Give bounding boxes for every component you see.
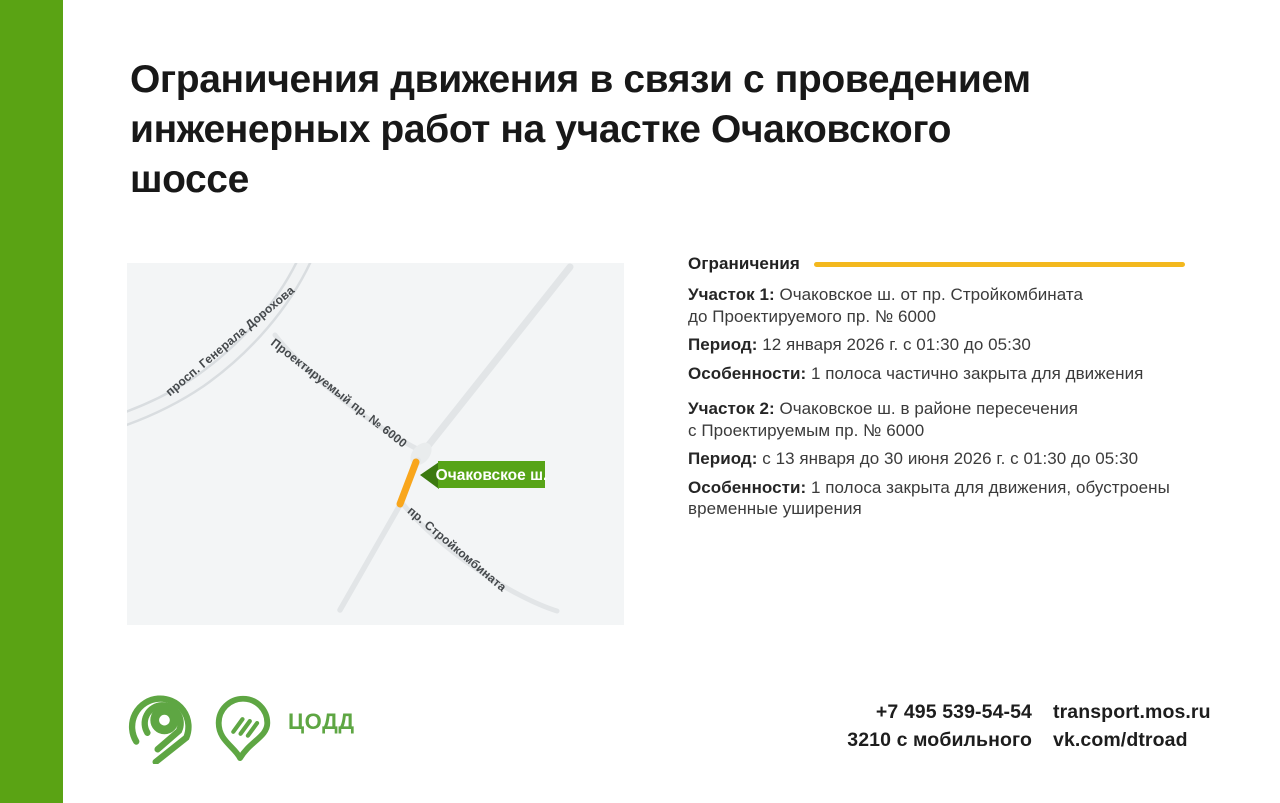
site-2: Участок 2: Очаковское ш. в районе пересе… — [688, 398, 1185, 441]
phone-mobile: 3210 с мобильного — [812, 727, 1032, 755]
road-map: просп. Генерала Дорохова Проектируемый п… — [127, 263, 624, 625]
social-link: vk.com/dtroad — [1053, 727, 1211, 755]
period-1: Период: 12 января 2026 г. с 01:30 до 05:… — [688, 334, 1185, 356]
poster: Ограничения движения в связи с проведени… — [0, 0, 1280, 803]
restrictions-header: Ограничения — [688, 254, 1185, 274]
website-link: transport.mos.ru — [1053, 699, 1211, 727]
logo-inner-ring — [155, 710, 174, 729]
codd-slashes — [233, 719, 257, 736]
site-1: Участок 1: Очаковское ш. от пр. Стройком… — [688, 284, 1185, 327]
highlight-callout: Очаковское ш. — [420, 461, 547, 489]
period-1-label: Период: — [688, 335, 757, 354]
features-1-label: Особенности: — [688, 364, 806, 383]
restrictions-heading: Ограничения — [688, 254, 800, 274]
callout-label: Очаковское ш. — [436, 467, 548, 484]
restriction-section-2: Участок 2: Очаковское ш. в районе пересе… — [688, 398, 1185, 520]
contact-phones: +7 495 539-54-54 3210 с мобильного — [812, 699, 1032, 754]
map-background — [127, 263, 624, 625]
features-2: Особенности: 1 полоса закрыта для движен… — [688, 477, 1185, 520]
green-accent-bar — [0, 0, 63, 803]
contact-links: transport.mos.ru vk.com/dtroad — [1053, 699, 1211, 754]
moscow-transport-logo-icon — [127, 686, 197, 764]
codd-logo-icon — [208, 686, 278, 764]
site-2-label: Участок 2: — [688, 399, 775, 418]
page-title: Ограничения движения в связи с проведени… — [130, 55, 1200, 205]
site-1-label: Участок 1: — [688, 285, 775, 304]
features-2-label: Особенности: — [688, 478, 806, 497]
restriction-section-1: Участок 1: Очаковское ш. от пр. Стройком… — [688, 284, 1185, 384]
features-1-text: 1 полоса частично закрыта для движения — [806, 364, 1143, 383]
heading-rule — [814, 262, 1185, 267]
phone-main: +7 495 539-54-54 — [812, 699, 1032, 727]
period-1-text: 12 января 2026 г. с 01:30 до 05:30 — [757, 335, 1030, 354]
period-2-label: Период: — [688, 449, 757, 468]
brand-name: ЦОДД — [288, 709, 355, 735]
features-1: Особенности: 1 полоса частично закрыта д… — [688, 363, 1185, 385]
restrictions-panel: Ограничения Участок 1: Очаковское ш. от … — [688, 254, 1185, 527]
period-2: Период: с 13 января до 30 июня 2026 г. с… — [688, 448, 1185, 470]
period-2-text: с 13 января до 30 июня 2026 г. с 01:30 д… — [757, 449, 1138, 468]
